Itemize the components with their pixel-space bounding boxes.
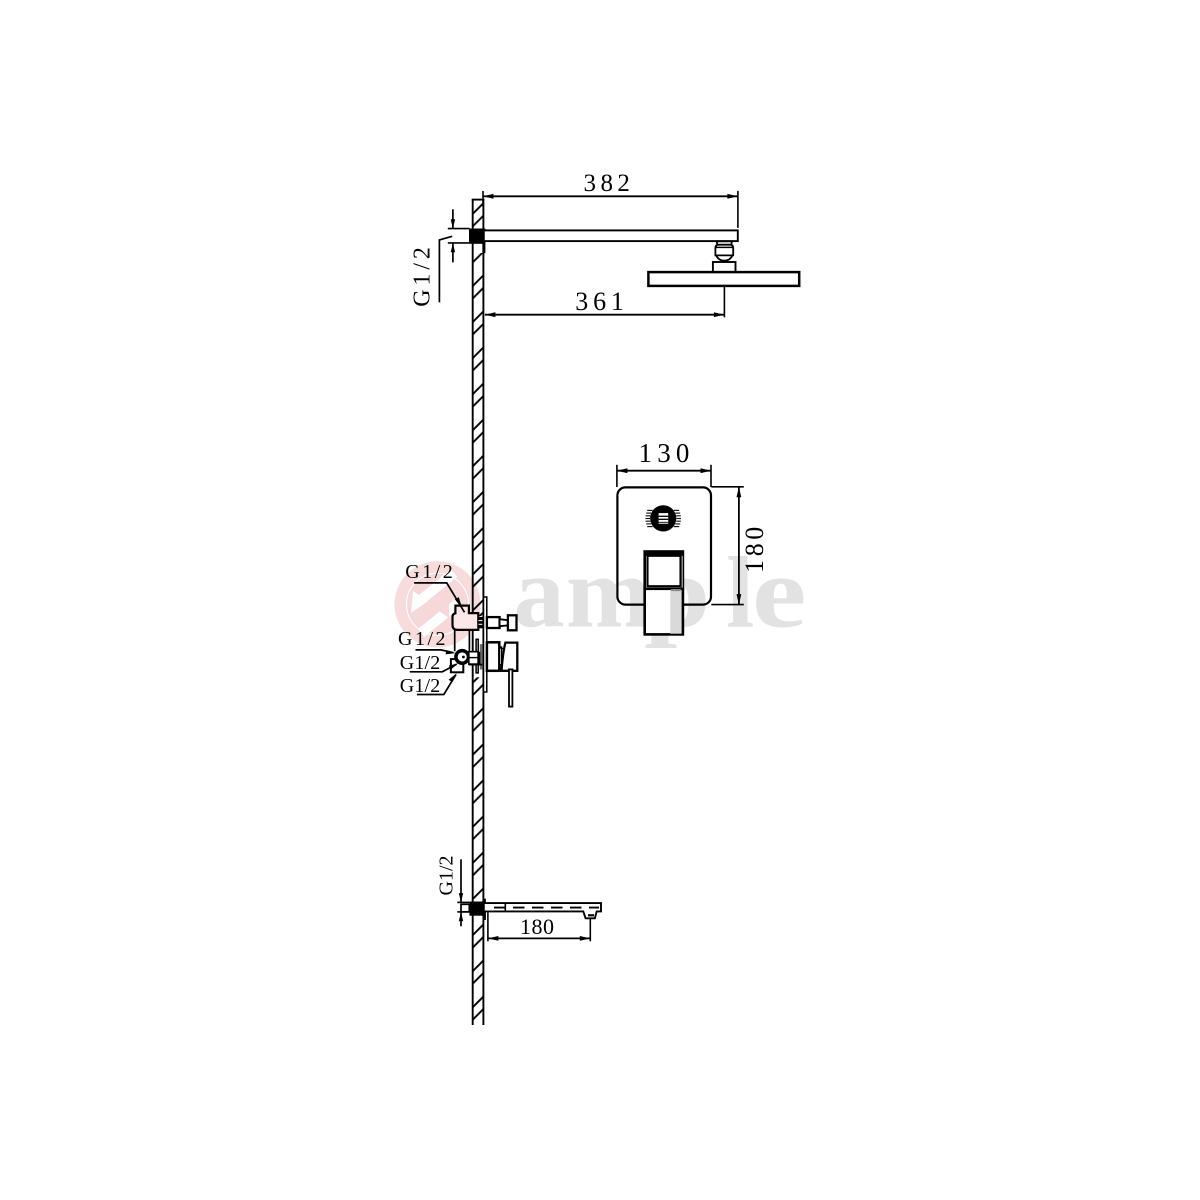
- svg-text:G1/2: G1/2: [436, 856, 458, 896]
- svg-text:180: 180: [740, 523, 769, 573]
- svg-text:180: 180: [520, 914, 555, 939]
- svg-text:G1/2: G1/2: [400, 652, 441, 674]
- svg-text:130: 130: [639, 438, 695, 468]
- svg-text:G1/2: G1/2: [400, 675, 441, 697]
- svg-text:361: 361: [575, 287, 628, 316]
- svg-text:G1/2: G1/2: [405, 561, 455, 583]
- svg-text:G1/2: G1/2: [409, 243, 435, 307]
- svg-text:G1/2: G1/2: [398, 628, 448, 650]
- svg-text:a: a: [514, 537, 565, 650]
- svg-text:m: m: [566, 537, 651, 650]
- svg-text:382: 382: [584, 170, 635, 197]
